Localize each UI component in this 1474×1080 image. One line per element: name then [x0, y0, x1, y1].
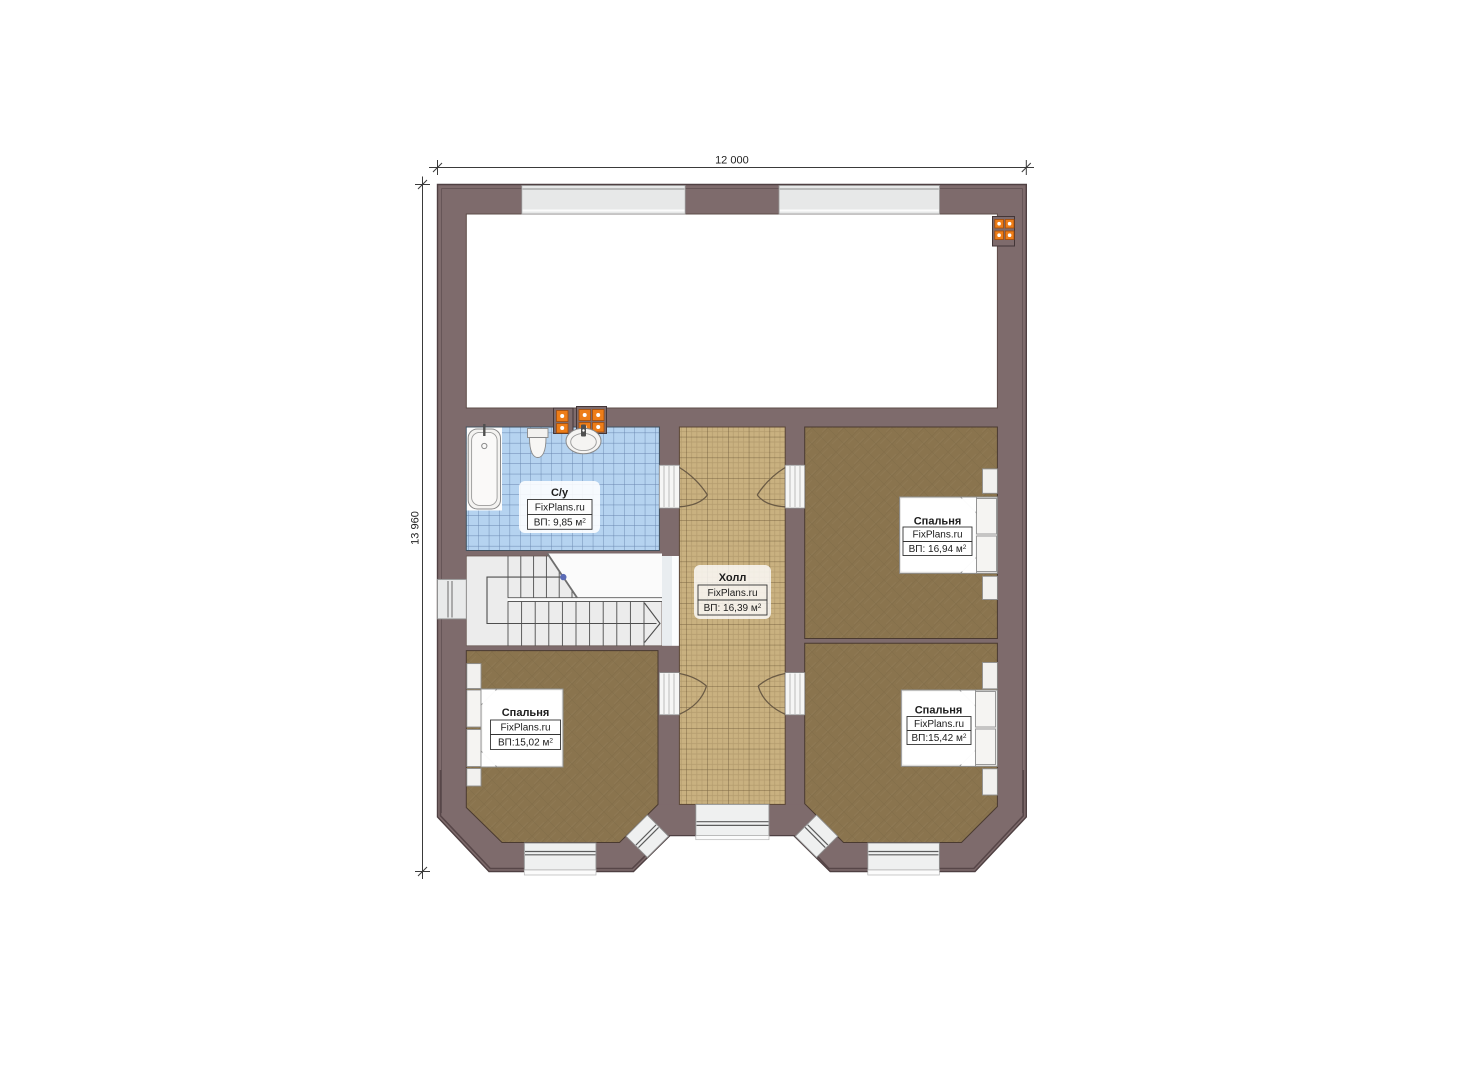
svg-text:FixPlans.ru: FixPlans.ru: [912, 530, 962, 541]
svg-text:ВП: 9,85 м2: ВП: 9,85 м2: [534, 518, 587, 529]
svg-text:ВП:15,02 м2: ВП:15,02 м2: [498, 738, 553, 749]
svg-text:FixPlans.ru: FixPlans.ru: [914, 719, 964, 730]
svg-text:ВП: 16,94 м2: ВП: 16,94 м2: [909, 544, 967, 555]
svg-text:ВП: 16,39 м2: ВП: 16,39 м2: [704, 603, 762, 614]
svg-text:Спальня: Спальня: [915, 705, 963, 717]
svg-text:FixPlans.ru: FixPlans.ru: [500, 723, 550, 734]
svg-text:С/у: С/у: [551, 487, 569, 499]
svg-text:Холл: Холл: [719, 572, 747, 584]
svg-text:Спальня: Спальня: [502, 707, 550, 719]
svg-text:Спальня: Спальня: [914, 516, 962, 528]
svg-text:13 960: 13 960: [410, 511, 422, 545]
svg-text:FixPlans.ru: FixPlans.ru: [535, 503, 585, 514]
svg-text:ВП:15,42 м2: ВП:15,42 м2: [912, 733, 967, 744]
svg-text:FixPlans.ru: FixPlans.ru: [707, 588, 757, 599]
svg-text:12 000: 12 000: [715, 155, 749, 167]
